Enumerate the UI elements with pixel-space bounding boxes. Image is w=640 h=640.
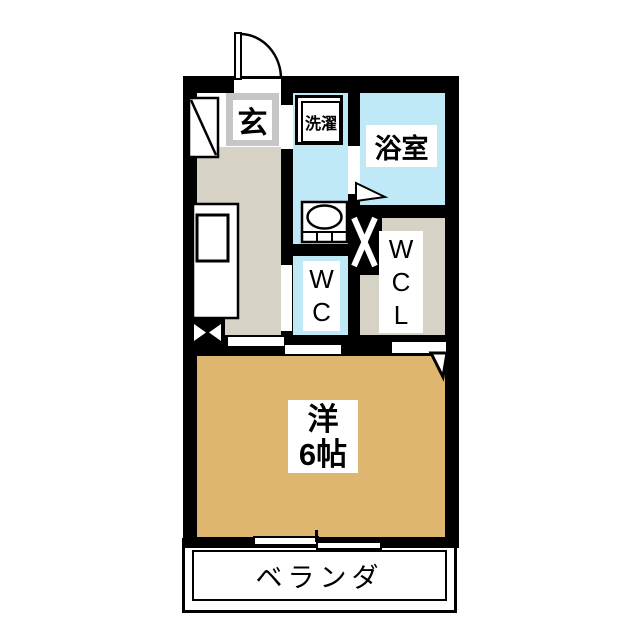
main-room-label-line2: 6帖	[299, 437, 347, 472]
entrance-label: 玄	[233, 100, 272, 140]
room-door-arrow-icon	[431, 353, 447, 377]
entrance-label-box: 玄	[226, 93, 279, 146]
bathroom-label: 浴室	[366, 125, 437, 167]
toilet-label: WC	[303, 261, 340, 331]
pipe-space-icon	[190, 319, 225, 345]
closet-label: WCL	[379, 231, 423, 333]
bathroom-door-arrow-icon	[356, 183, 385, 201]
entrance-door-swing-icon	[235, 33, 281, 79]
washbasin-icon	[302, 202, 347, 242]
shoe-cabinet-icon	[189, 98, 218, 157]
laundry-label: 洗濯	[301, 101, 341, 143]
main-room-label-line1: 洋	[308, 402, 339, 437]
floor-plan: ベランダ	[0, 0, 640, 640]
duct-icon	[354, 218, 375, 266]
laundry-label-box: 洗濯	[295, 95, 343, 145]
main-room-label: 洋 6帖	[288, 400, 358, 473]
kitchen-sink-icon	[193, 204, 238, 318]
